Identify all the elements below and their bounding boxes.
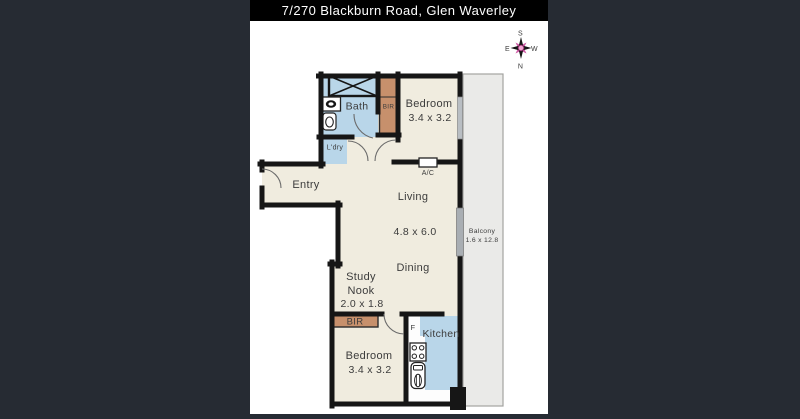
title-bar: 7/270 Blackburn Road, Glen Waverley: [250, 0, 548, 21]
cooktop-icon: [410, 343, 426, 361]
floor-plan-svg: Bath BIR Bedroom 3.4 x 3.2 L'dry Entry A…: [250, 21, 548, 414]
room-label-bir-bottom: BIR: [347, 317, 364, 328]
room-label-bir-top: BIR: [383, 104, 395, 111]
compass-south: S: [518, 31, 523, 38]
label-fridge: F: [411, 323, 416, 332]
compass-icon: S E W N: [505, 31, 538, 71]
compass-center: [518, 45, 524, 51]
sink-icon: [323, 97, 341, 111]
toilet-icon: [323, 113, 336, 130]
room-label-living: Living: [398, 191, 429, 203]
dim-label-living-dining: 4.8 x 6.0: [394, 226, 437, 238]
plan-canvas: Bath BIR Bedroom 3.4 x 3.2 L'dry Entry A…: [250, 21, 548, 414]
compass-west: W: [531, 46, 538, 53]
room-label-entry: Entry: [292, 179, 319, 191]
page-title: 7/270 Blackburn Road, Glen Waverley: [282, 3, 517, 18]
compass-east: E: [505, 46, 510, 53]
dim-label-balcony: 1.6 x 12.8: [466, 237, 499, 244]
compass-north: N: [518, 64, 523, 71]
room-label-balcony: Balcony: [469, 228, 496, 235]
oven-icon: [411, 363, 425, 389]
room-label-bedroom-bottom: Bedroom: [346, 350, 393, 362]
floor-plan-page: 7/270 Blackburn Road, Glen Waverley: [0, 0, 800, 414]
window: [458, 97, 463, 139]
room-label-bedroom-top: Bedroom: [406, 98, 453, 110]
label-ac: A/C: [422, 170, 435, 177]
room-label-study: Study: [346, 271, 376, 283]
room-label-laundry: L'dry: [327, 145, 344, 152]
dim-label-bedroom-bottom: 3.4 x 3.2: [349, 364, 392, 376]
dim-label-bedroom-top: 3.4 x 3.2: [409, 112, 452, 124]
room-label-bath: Bath: [346, 101, 369, 113]
dim-label-study-nook: 2.0 x 1.8: [341, 298, 384, 310]
shower-icon: [329, 76, 377, 96]
room-label-nook: Nook: [348, 285, 375, 297]
room-label-kitchen: Kitchen: [422, 328, 459, 340]
laundry-floor: [322, 139, 347, 164]
room-label-dining: Dining: [397, 262, 430, 274]
sliding-door: [457, 208, 464, 256]
black-core: [450, 387, 466, 410]
ac-unit: [419, 158, 437, 167]
